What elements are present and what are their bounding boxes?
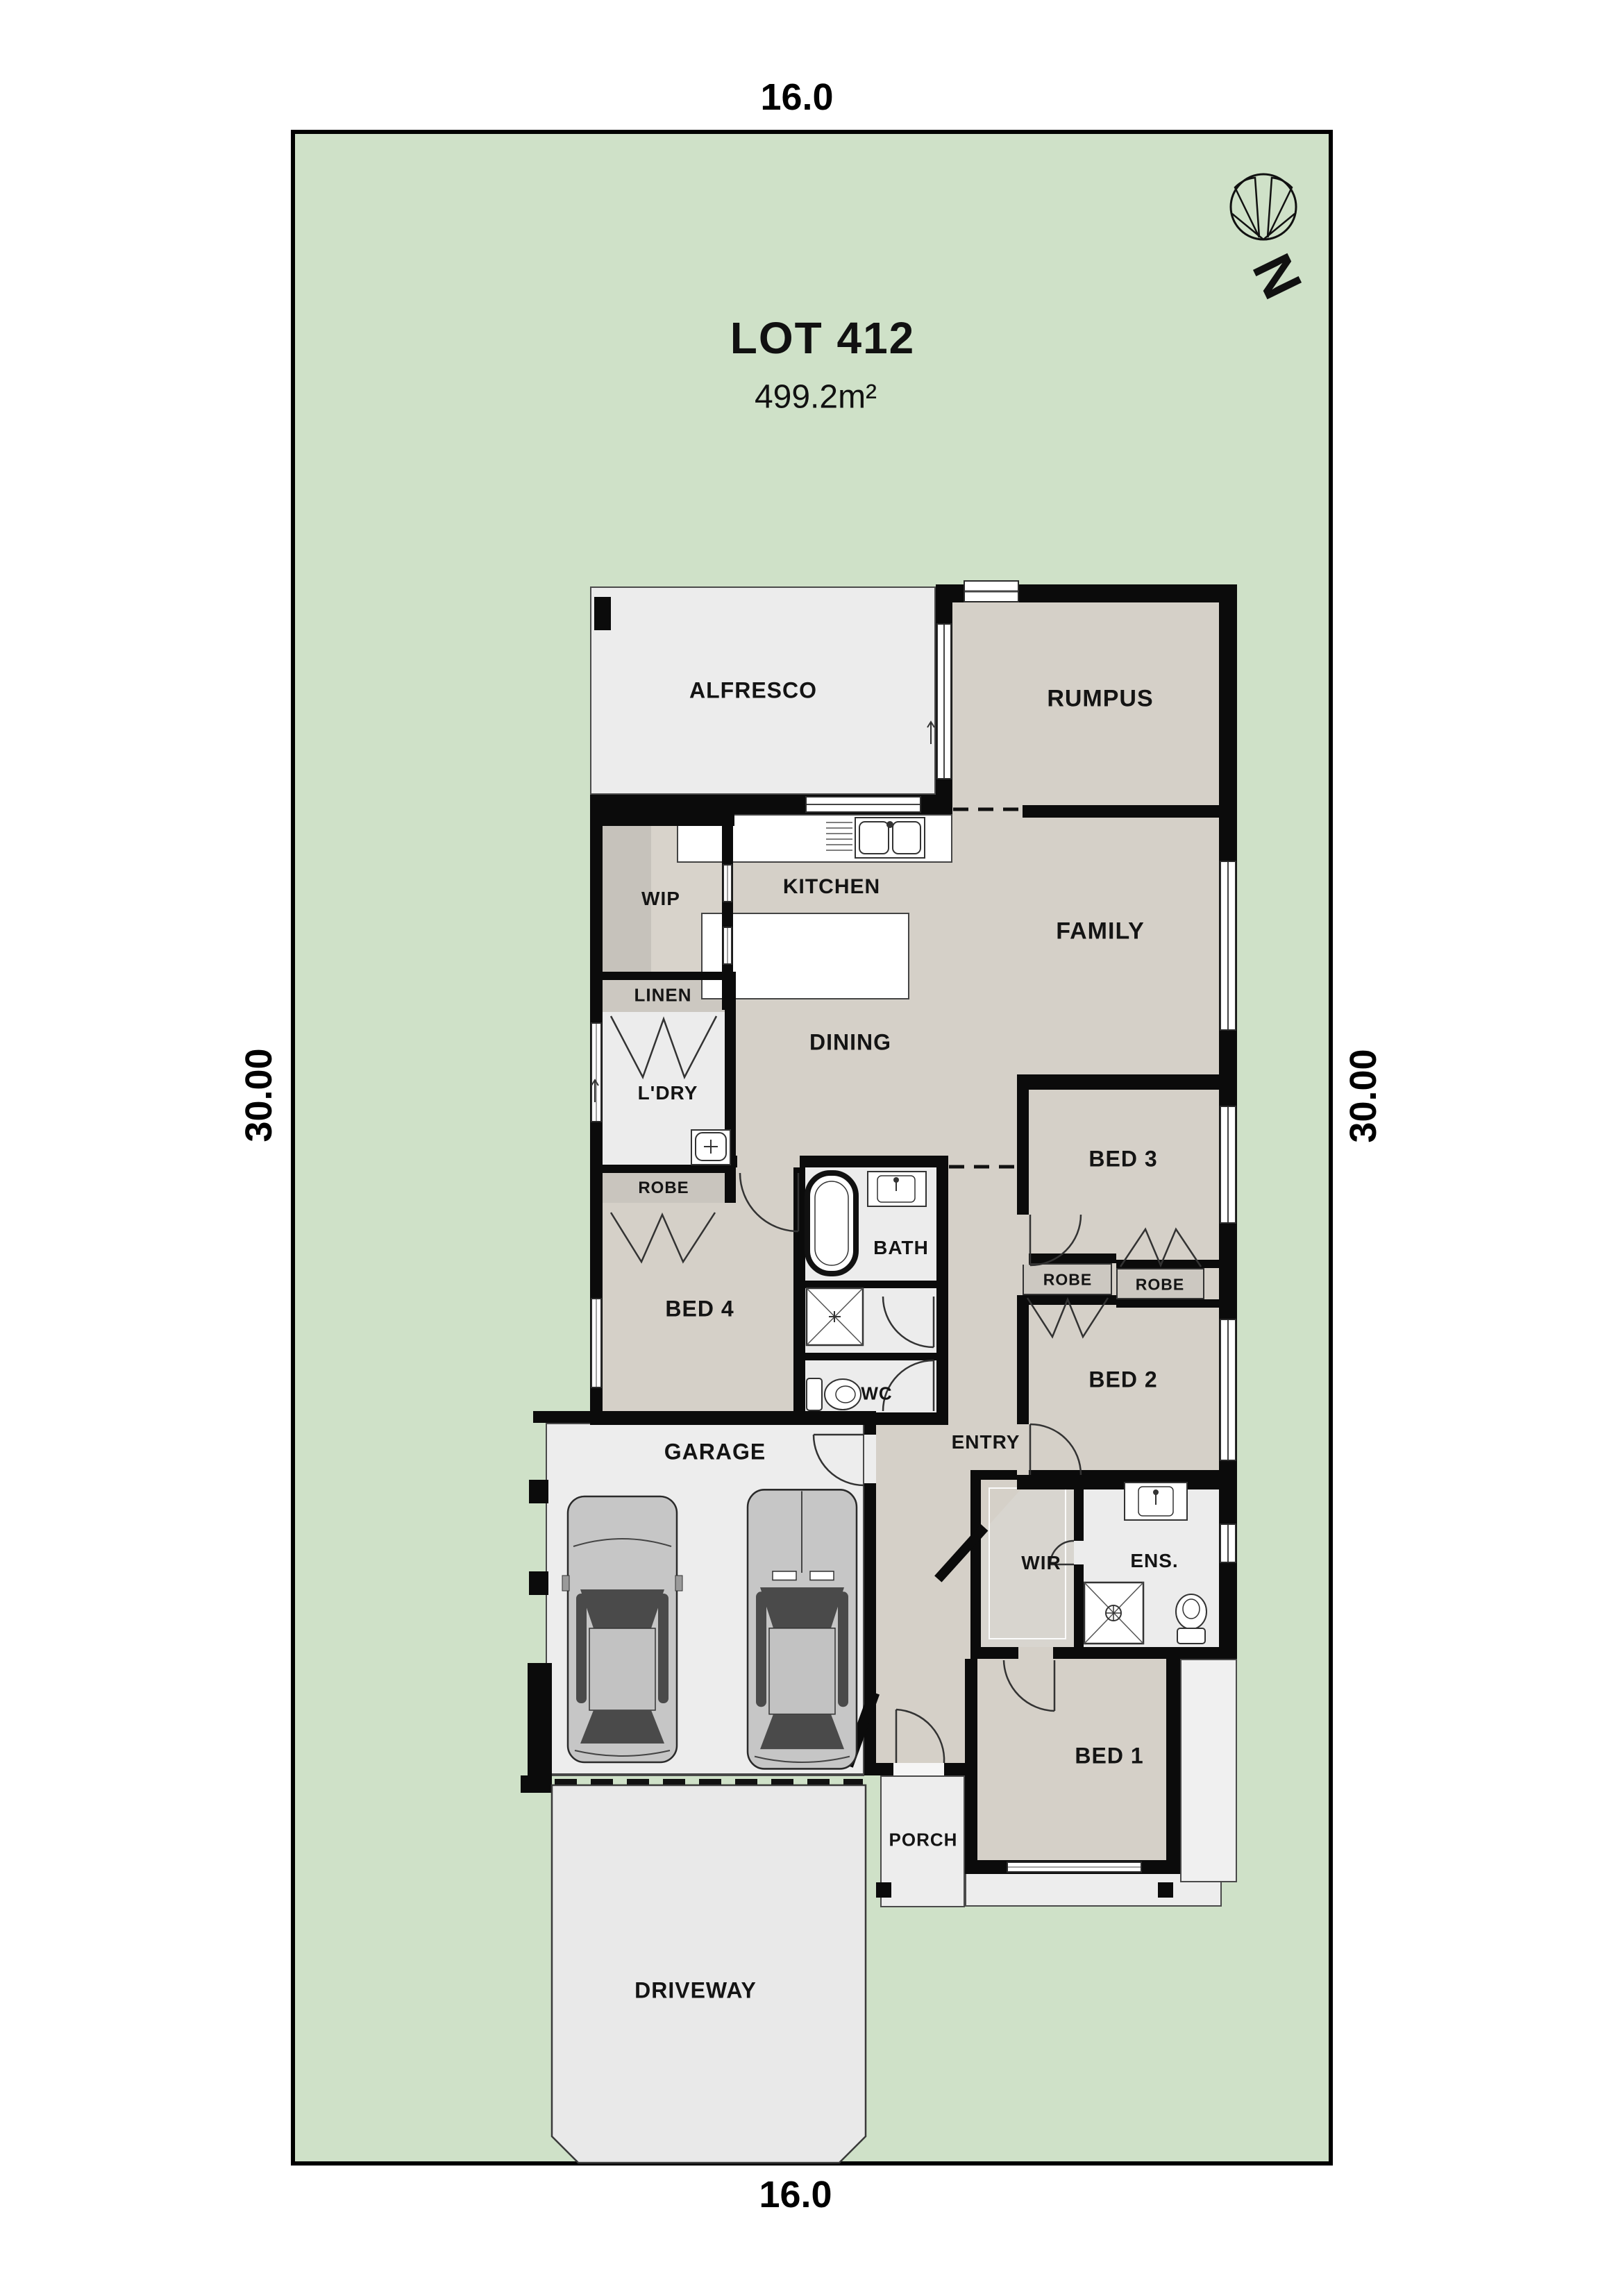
site-plan-canvas: 16.0 16.0 30.00 30.00 LOT 412 499.2m² <box>0 0 1623 2296</box>
wall-segment <box>1053 1647 1237 1659</box>
room-label-ldry: L'DRY <box>638 1082 698 1104</box>
wall-segment <box>533 1411 876 1423</box>
wall-segment <box>725 972 736 1166</box>
laundry-window <box>591 1022 602 1122</box>
bath-wc-floor <box>805 1167 936 1412</box>
ensuite-window <box>1220 1523 1236 1563</box>
room-label-bed2: BED 2 <box>1088 1367 1157 1393</box>
wall-segment <box>1017 1253 1116 1263</box>
dimension-top: 16.0 <box>760 76 833 119</box>
wall-segment <box>1116 1299 1219 1308</box>
lot-area: 499.2m² <box>755 378 877 416</box>
room-label-wir: WIR <box>1021 1552 1061 1574</box>
wall-segment <box>1023 805 1219 818</box>
gap-segment <box>864 1435 876 1483</box>
wall-segment <box>805 1281 937 1288</box>
wall-segment <box>725 1165 736 1203</box>
bed2-window <box>1220 1319 1236 1461</box>
wall-segment <box>1158 1882 1173 1898</box>
wall-segment <box>528 1663 552 1793</box>
room-label-robe-bed3: ROBE <box>1043 1271 1092 1290</box>
room-label-dining: DINING <box>809 1030 891 1056</box>
dimension-right: 30.00 <box>1342 1049 1385 1142</box>
wall-segment <box>529 1571 548 1595</box>
wall-segment <box>970 1647 1018 1659</box>
wall-segment <box>1017 1295 1116 1305</box>
wall-segment <box>1166 1659 1180 1874</box>
entry-floor <box>876 1659 970 1775</box>
wall-segment <box>936 1156 948 1425</box>
room-label-rumpus: RUMPUS <box>1047 686 1153 713</box>
room-label-ens: ENS. <box>1130 1550 1178 1572</box>
wall-segment <box>1019 1074 1219 1090</box>
room-label-porch: PORCH <box>889 1830 958 1851</box>
bed4-window <box>591 1298 602 1388</box>
gap-segment <box>893 1763 944 1775</box>
lot-title: LOT 412 <box>730 312 916 364</box>
wall-segment <box>1074 1564 1084 1647</box>
room-label-driveway: DRIVEWAY <box>634 1978 757 2004</box>
wall-segment <box>965 1659 977 1872</box>
wall-segment <box>590 972 725 980</box>
wall-segment <box>1116 1260 1219 1268</box>
family-window <box>1220 861 1236 1031</box>
bed3-window <box>1220 1106 1236 1224</box>
gap-segment <box>1017 1215 1029 1265</box>
wall-segment <box>864 1423 876 1435</box>
dimension-bottom: 16.0 <box>759 2173 832 2216</box>
room-label-entry: ENTRY <box>952 1431 1020 1453</box>
room-label-robe-bed2: ROBE <box>1136 1276 1184 1294</box>
room-label-bed3: BED 3 <box>1088 1147 1157 1172</box>
room-label-family: FAMILY <box>1056 918 1145 945</box>
wall-segment <box>521 1775 552 1793</box>
wall-segment <box>594 597 611 630</box>
room-label-bed1: BED 1 <box>1075 1744 1143 1769</box>
wall-segment <box>805 1353 937 1360</box>
room-label-wip: WIP <box>641 888 680 910</box>
wall-segment <box>1017 1074 1029 1215</box>
room-label-alfresco: ALFRESCO <box>689 678 817 704</box>
kitchen-window <box>805 796 921 813</box>
alfresco-sliding-door <box>936 623 952 779</box>
gap-segment <box>1018 1647 1053 1659</box>
wall-segment <box>590 1165 726 1173</box>
bed1-window <box>1007 1862 1142 1873</box>
wall-segment <box>970 1480 981 1647</box>
room-label-wc: WC <box>861 1383 892 1405</box>
wall-segment <box>529 1480 548 1503</box>
wall-segment <box>590 814 734 826</box>
wall-segment <box>1017 1305 1029 1424</box>
wip-opening-1 <box>723 864 732 902</box>
edge-segment <box>546 1423 864 1776</box>
rumpus-window <box>964 580 1019 602</box>
wall-segment <box>970 1470 1237 1480</box>
gap-segment <box>1074 1541 1084 1564</box>
room-label-robe-bed4: ROBE <box>638 1179 689 1198</box>
wip-opening-2 <box>723 927 732 965</box>
edge-segment <box>1180 1659 1237 1882</box>
wall-segment <box>876 1882 891 1898</box>
dimension-left: 30.00 <box>237 1048 280 1142</box>
room-label-kitchen: KITCHEN <box>783 875 880 899</box>
gap-segment <box>737 1156 800 1167</box>
wall-segment <box>1074 1480 1084 1541</box>
room-label-linen: LINEN <box>634 985 692 1006</box>
room-label-bed4: BED 4 <box>665 1297 734 1322</box>
room-label-garage: GARAGE <box>664 1440 766 1465</box>
wall-segment <box>793 1167 805 1412</box>
room-label-bath: BATH <box>873 1237 929 1259</box>
